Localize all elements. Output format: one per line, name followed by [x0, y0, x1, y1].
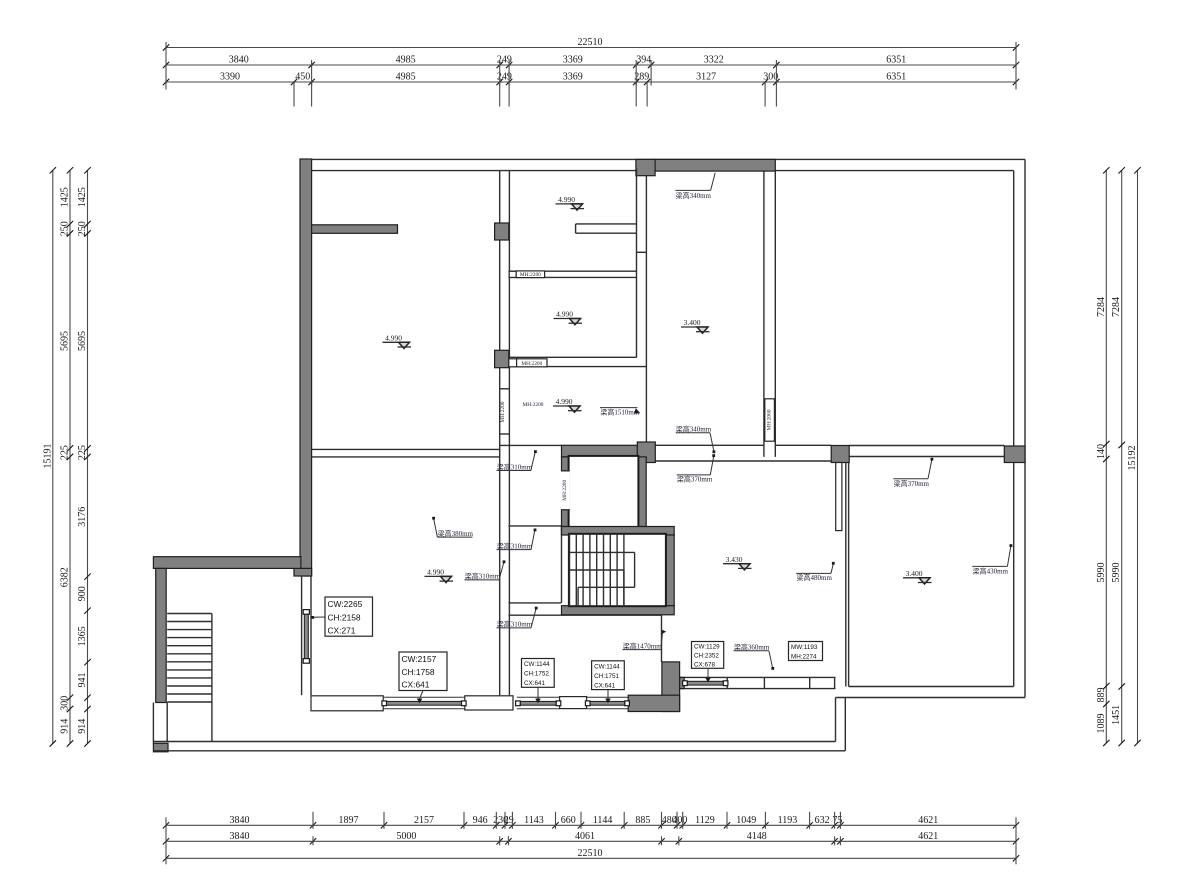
svg-text:MH:2060: MH:2060 — [766, 409, 772, 430]
svg-text:梁高360mm: 梁高360mm — [734, 642, 770, 651]
svg-text:3390: 3390 — [220, 72, 240, 83]
svg-text:941: 941 — [77, 673, 88, 688]
svg-text:MW:1193: MW:1193 — [791, 644, 818, 651]
svg-text:4985: 4985 — [396, 55, 416, 66]
svg-text:MH:2200: MH:2200 — [562, 480, 568, 501]
svg-text:250: 250 — [77, 221, 88, 236]
svg-text:394: 394 — [636, 55, 651, 66]
svg-text:4.990: 4.990 — [556, 397, 573, 406]
svg-text:3840: 3840 — [230, 831, 250, 842]
svg-text:75: 75 — [833, 815, 843, 826]
svg-text:2157: 2157 — [414, 815, 434, 826]
svg-text:5695: 5695 — [60, 331, 71, 351]
svg-text:CX:641: CX:641 — [402, 680, 430, 690]
svg-text:梁高1510mm: 梁高1510mm — [600, 407, 639, 416]
svg-text:梁高340mm: 梁高340mm — [676, 191, 712, 200]
svg-text:1049: 1049 — [736, 815, 756, 826]
svg-text:1129: 1129 — [695, 815, 715, 826]
svg-text:梁高430mm: 梁高430mm — [973, 567, 1009, 576]
svg-text:CW:1144: CW:1144 — [524, 661, 550, 668]
svg-text:梁高480mm: 梁高480mm — [797, 573, 833, 582]
svg-text:4621: 4621 — [918, 815, 938, 826]
svg-text:225: 225 — [77, 445, 88, 460]
svg-text:1144: 1144 — [593, 815, 613, 826]
svg-text:5695: 5695 — [77, 331, 88, 351]
svg-text:CW:2157: CW:2157 — [402, 654, 437, 664]
svg-text:3176: 3176 — [77, 507, 88, 527]
svg-text:CH:1751: CH:1751 — [594, 673, 619, 680]
svg-text:3.400: 3.400 — [906, 569, 923, 578]
svg-text:3840: 3840 — [230, 815, 250, 826]
svg-text:3.400: 3.400 — [684, 318, 701, 327]
svg-text:梁高1470mm: 梁高1470mm — [623, 641, 662, 650]
svg-text:梁高370mm: 梁高370mm — [677, 474, 713, 483]
svg-text:梁高310mm: 梁高310mm — [497, 620, 533, 629]
svg-text:MH:2274: MH:2274 — [791, 653, 817, 660]
svg-text:250: 250 — [60, 221, 71, 236]
svg-text:MH:2200: MH:2200 — [521, 361, 542, 367]
svg-text:889: 889 — [1096, 688, 1107, 703]
svg-text:400: 400 — [672, 815, 687, 826]
svg-text:300: 300 — [60, 696, 71, 711]
svg-text:CX:641: CX:641 — [524, 680, 546, 687]
svg-text:3.430: 3.430 — [726, 555, 743, 564]
svg-text:CX:271: CX:271 — [328, 625, 356, 635]
svg-text:7284: 7284 — [1111, 297, 1122, 317]
svg-text:梁高310mm: 梁高310mm — [497, 541, 533, 550]
svg-text:4061: 4061 — [575, 831, 595, 842]
svg-text:1425: 1425 — [77, 187, 88, 207]
svg-text:1365: 1365 — [77, 626, 88, 646]
svg-text:CH:1752: CH:1752 — [524, 671, 549, 678]
svg-text:梁高310mm: 梁高310mm — [497, 462, 533, 471]
svg-text:CH:2158: CH:2158 — [328, 612, 361, 622]
svg-text:CX:678: CX:678 — [694, 661, 716, 668]
svg-text:MH:2200: MH:2200 — [520, 272, 541, 278]
svg-text:4.990: 4.990 — [427, 568, 444, 577]
svg-text:梁高340mm: 梁高340mm — [676, 424, 712, 433]
svg-text:梁高370mm: 梁高370mm — [894, 479, 930, 488]
svg-text:5990: 5990 — [1096, 563, 1107, 583]
svg-text:3127: 3127 — [696, 72, 716, 83]
svg-text:4985: 4985 — [396, 72, 416, 83]
svg-text:5000: 5000 — [396, 831, 416, 842]
svg-text:CH:1758: CH:1758 — [402, 667, 435, 677]
svg-text:6351: 6351 — [886, 72, 906, 83]
svg-text:CW:1129: CW:1129 — [694, 644, 720, 651]
svg-text:914: 914 — [77, 719, 88, 734]
svg-text:MH:2200: MH:2200 — [523, 402, 544, 408]
svg-text:22510: 22510 — [578, 37, 603, 48]
svg-text:885: 885 — [635, 815, 650, 826]
svg-text:6351: 6351 — [886, 55, 906, 66]
svg-text:1451: 1451 — [1111, 705, 1122, 725]
svg-text:4.990: 4.990 — [556, 310, 573, 319]
svg-text:6382: 6382 — [60, 567, 71, 587]
svg-text:15192: 15192 — [1127, 446, 1138, 471]
svg-text:7284: 7284 — [1096, 297, 1107, 317]
svg-text:632: 632 — [815, 815, 830, 826]
svg-text:5990: 5990 — [1111, 563, 1122, 583]
svg-text:3840: 3840 — [229, 55, 249, 66]
svg-text:3369: 3369 — [563, 72, 583, 83]
svg-text:梁高310mm: 梁高310mm — [465, 572, 501, 581]
svg-text:梁高380mm: 梁高380mm — [438, 529, 474, 538]
svg-text:946: 946 — [473, 815, 488, 826]
svg-text:450: 450 — [295, 72, 310, 83]
svg-text:CH:2352: CH:2352 — [694, 652, 719, 659]
svg-text:3322: 3322 — [704, 55, 724, 66]
svg-text:1425: 1425 — [60, 187, 71, 207]
svg-text:4621: 4621 — [918, 831, 938, 842]
svg-text:CW:1144: CW:1144 — [594, 663, 620, 670]
svg-text:900: 900 — [77, 586, 88, 601]
svg-text:1089: 1089 — [1096, 714, 1107, 734]
svg-text:660: 660 — [561, 815, 576, 826]
svg-text:22510: 22510 — [578, 848, 603, 859]
svg-text:1897: 1897 — [339, 815, 359, 826]
svg-text:1193: 1193 — [778, 815, 798, 826]
svg-text:CW:2265: CW:2265 — [328, 599, 363, 609]
svg-text:4.990: 4.990 — [385, 334, 402, 343]
svg-text:CX:641: CX:641 — [594, 683, 616, 690]
svg-text:15191: 15191 — [42, 444, 53, 469]
svg-text:MH:2200: MH:2200 — [500, 401, 506, 422]
svg-text:3369: 3369 — [563, 55, 583, 66]
svg-text:1143: 1143 — [524, 815, 544, 826]
svg-text:140: 140 — [1096, 444, 1107, 459]
svg-text:914: 914 — [60, 719, 71, 734]
svg-text:4148: 4148 — [747, 831, 767, 842]
svg-text:225: 225 — [60, 445, 71, 460]
svg-text:4.990: 4.990 — [558, 195, 575, 204]
